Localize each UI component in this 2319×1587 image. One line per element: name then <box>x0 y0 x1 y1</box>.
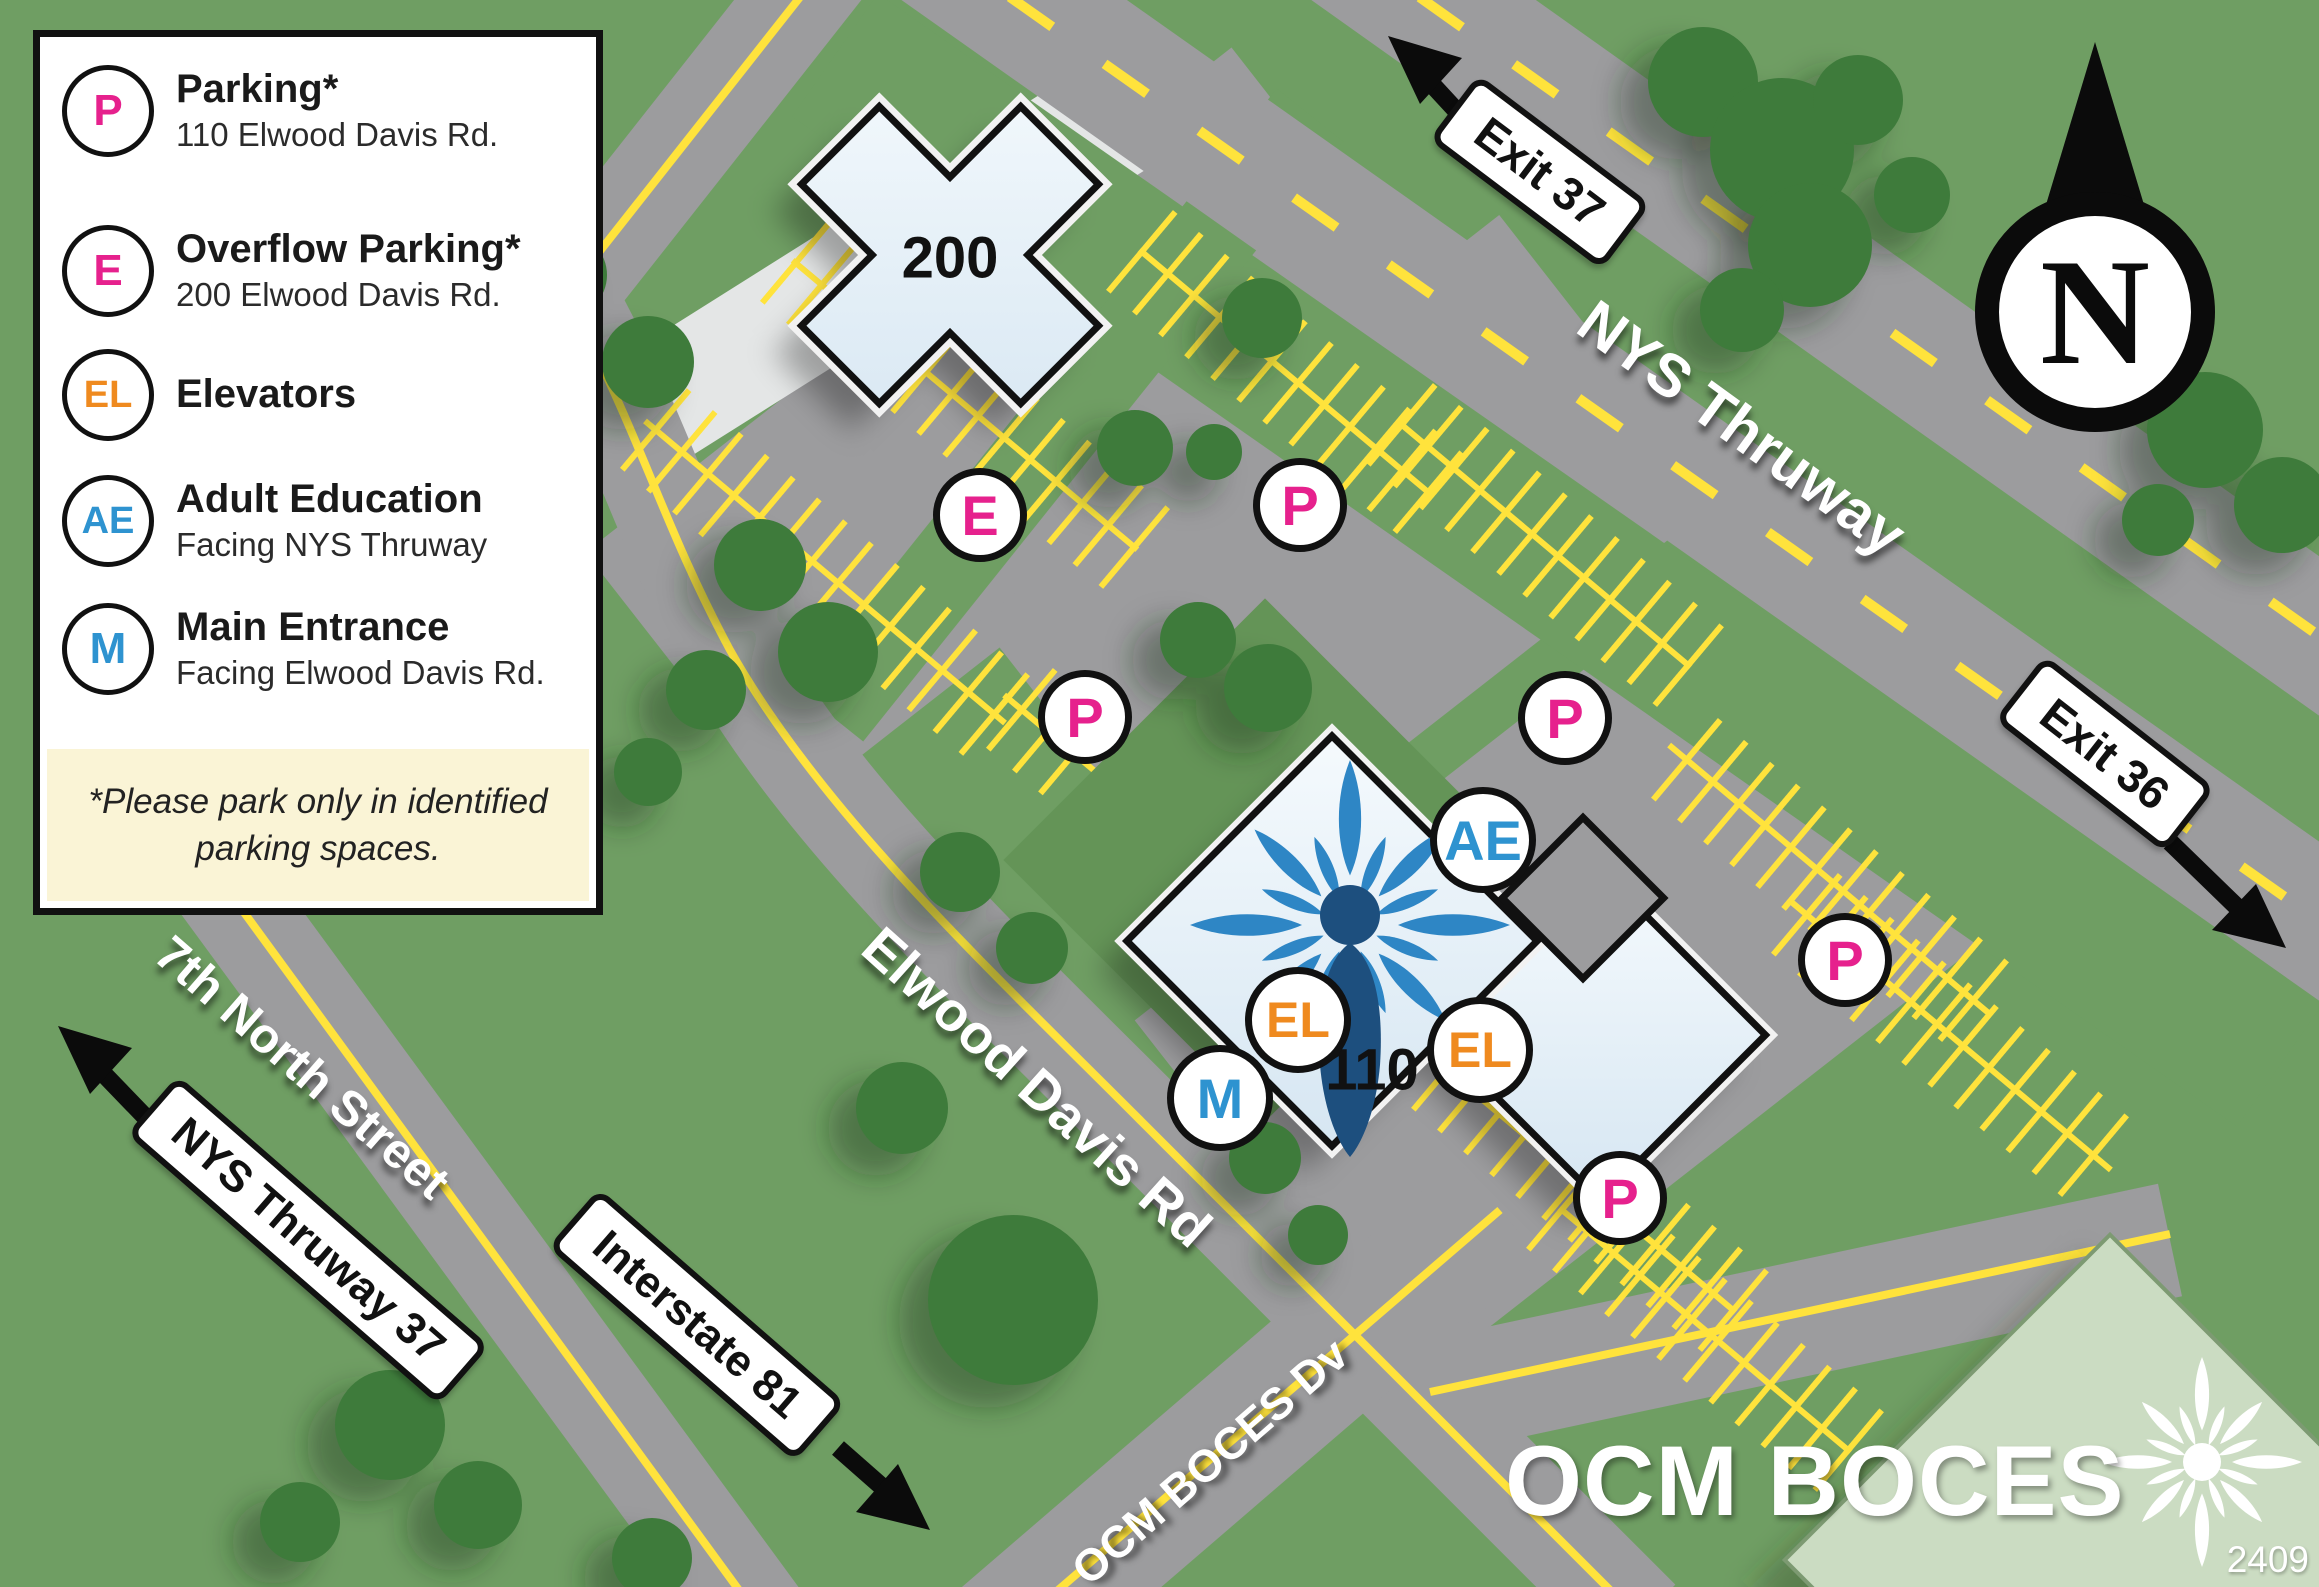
legend-item-elevators: EL Elevators <box>62 349 356 441</box>
legend-panel: P Parking* 110 Elwood Davis Rd. E Overfl… <box>33 30 603 915</box>
doc-number: 2409 <box>2227 1539 2309 1581</box>
legend-item-overflow-parking: E Overflow Parking* 200 Elwood Davis Rd. <box>62 225 521 317</box>
parking-symbol-icon: P <box>62 65 154 157</box>
marker-elevator-1: EL <box>1245 967 1351 1073</box>
legend-title: Elevators <box>176 373 356 416</box>
legend-title: Adult Education <box>176 478 487 521</box>
note-line-2: parking spaces. <box>195 825 440 872</box>
marker-adult-education: AE <box>1430 787 1536 893</box>
ocm-boces-wordmark: OCM BOCES <box>1505 1424 2125 1538</box>
north-compass: N <box>1975 192 2215 432</box>
elevator-symbol-icon: EL <box>62 349 154 441</box>
main-entrance-symbol-icon: M <box>62 603 154 695</box>
marker-parking-4: P <box>1798 913 1892 1007</box>
marker-parking-3: P <box>1518 671 1612 765</box>
legend-item-parking: P Parking* 110 Elwood Davis Rd. <box>62 65 498 157</box>
legend-title: Main Entrance <box>176 606 545 649</box>
legend-title: Overflow Parking* <box>176 228 521 271</box>
marker-parking-2: P <box>1038 670 1132 764</box>
legend-item-main-entrance: M Main Entrance Facing Elwood Davis Rd. <box>62 603 545 695</box>
legend-subtitle: Facing NYS Thruway <box>176 526 487 564</box>
legend-subtitle: Facing Elwood Davis Rd. <box>176 654 545 692</box>
adult-education-symbol-icon: AE <box>62 475 154 567</box>
marker-parking-1: P <box>1253 458 1347 552</box>
legend-note: *Please park only in identified parking … <box>47 749 589 901</box>
legend-item-adult-education: AE Adult Education Facing NYS Thruway <box>62 475 487 567</box>
campus-map: P Parking* 110 Elwood Davis Rd. E Overfl… <box>0 0 2319 1587</box>
marker-parking-5: P <box>1573 1151 1667 1245</box>
legend-subtitle: 110 Elwood Davis Rd. <box>176 116 498 154</box>
legend-subtitle: 200 Elwood Davis Rd. <box>176 276 521 314</box>
compass-letter: N <box>2040 225 2150 399</box>
building-200-label: 200 <box>902 225 999 292</box>
overflow-symbol-icon: E <box>62 225 154 317</box>
note-line-1: *Please park only in identified <box>88 778 547 825</box>
legend-title: Parking* <box>176 68 498 111</box>
marker-overflow-parking: E <box>933 468 1027 562</box>
marker-main-entrance: M <box>1167 1045 1273 1151</box>
marker-elevator-2: EL <box>1427 997 1533 1103</box>
